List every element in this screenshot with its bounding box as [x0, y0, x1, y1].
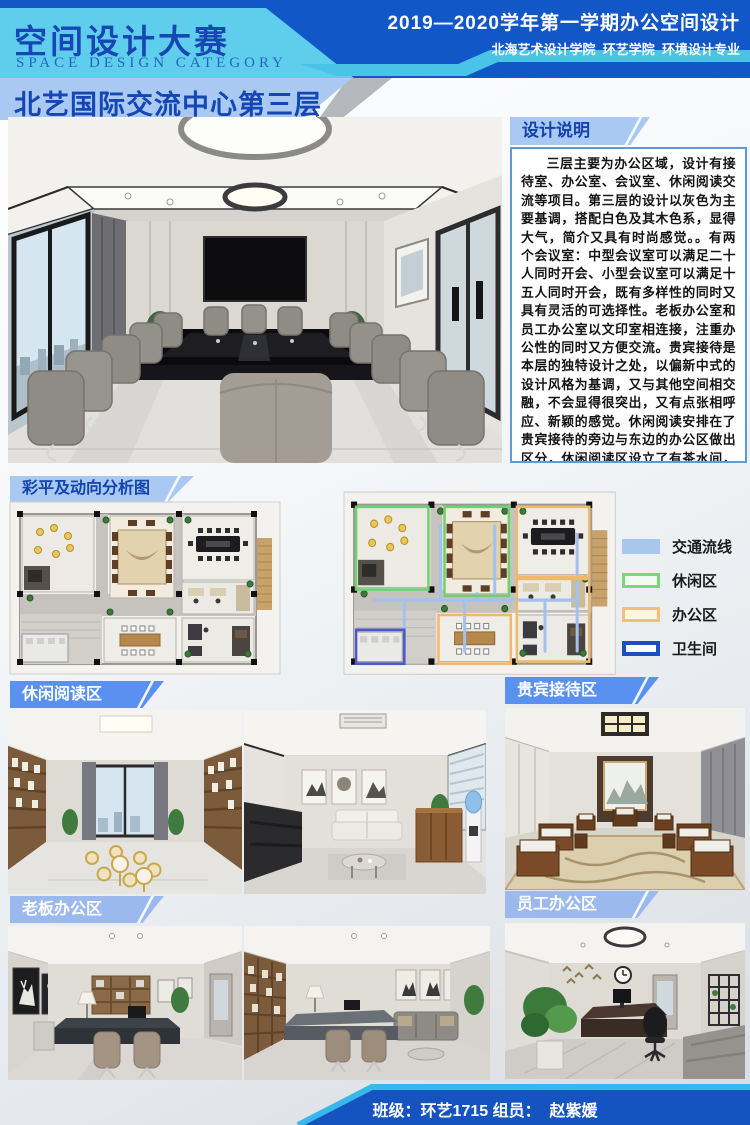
- wall-art: [302, 770, 386, 804]
- legend-swatch-office: [622, 607, 660, 622]
- term-line: 2019—2020学年第一学期办公空间设计: [387, 8, 740, 35]
- plant: [464, 985, 484, 1015]
- left-wall: [505, 738, 549, 838]
- photo-staff-office: [505, 923, 745, 1079]
- legend-label: 休闲区: [672, 570, 717, 591]
- ceiling-light-large: [181, 117, 329, 157]
- coffee-table: [408, 1048, 444, 1060]
- ceiling-light: [605, 928, 645, 946]
- monitor: [613, 989, 631, 1003]
- legend-swatch-traffic: [622, 539, 660, 554]
- sofa: [394, 1012, 458, 1040]
- department-line: 北海艺术设计学院 环艺学院 环境设计专业: [492, 39, 740, 58]
- footer-credit: 班级：环艺1715 组员： 赵紫媛: [290, 1097, 680, 1121]
- page-subtitle: SPACE DESIGN CATEGORY: [16, 55, 287, 72]
- floor-plan-analysis: [344, 492, 615, 674]
- photo-vip-reception: [505, 708, 745, 890]
- section-tag-leisure-reading: 休闲阅读区: [10, 681, 164, 708]
- legend-item-bathroom: 卫生间: [622, 638, 748, 659]
- design-notes-body: 三层主要为办公区域，设计有接待室、办公室、会议室、休闲阅读交流等项目。第三层的设…: [521, 155, 736, 463]
- cabinet: [416, 808, 462, 862]
- section-tag-staff-office: 员工办公区: [505, 891, 659, 918]
- floor-banner-main: 北艺国际交流中心: [14, 90, 238, 120]
- ac-vent: [340, 714, 386, 728]
- section-tag-boss-office: 老板办公区: [10, 896, 164, 923]
- white-sofa: [332, 810, 402, 840]
- plant: [171, 987, 189, 1013]
- legend-item-leisure: 休闲区: [622, 570, 748, 591]
- photo-reading-room: [8, 710, 242, 894]
- light-panel: [100, 716, 152, 732]
- legend-swatch-leisure: [622, 573, 660, 588]
- legend-label: 卫生间: [672, 638, 717, 659]
- foreground-chair: [220, 373, 332, 463]
- tv-screen: [204, 237, 306, 301]
- legend-item-traffic: 交通流线: [622, 536, 748, 557]
- legend-item-office: 办公区: [622, 604, 748, 625]
- design-notes-tag: 设计说明: [510, 117, 650, 145]
- legend-label: 办公区: [672, 604, 717, 625]
- floor-plans: [8, 490, 628, 680]
- photo-lounge: [244, 710, 486, 894]
- photo-boss-office-1: [8, 926, 242, 1080]
- photo-conference-room: [8, 117, 502, 463]
- water-dispenser: [466, 791, 482, 862]
- legend-label: 交通流线: [672, 536, 732, 557]
- design-notes-box: 三层主要为办公区域，设计有接待室、办公室、会议室、休闲阅读交流等项目。第三层的设…: [510, 147, 747, 463]
- plan-legend: 交通流线 休闲区 办公区 卫生间: [622, 536, 748, 672]
- curtain: [82, 762, 96, 840]
- ceiling-light-round: [225, 185, 285, 209]
- ceiling-lamp: [601, 712, 649, 736]
- photo-boss-office-2: [244, 926, 490, 1080]
- section-tag-vip-reception: 贵宾接待区: [505, 677, 659, 704]
- plant: [62, 809, 78, 835]
- floor-plan-color: [10, 502, 280, 674]
- legend-swatch-bathroom: [622, 641, 660, 656]
- poster: 空间设计大赛 SPACE DESIGN CATEGORY 2019—2020学年…: [0, 0, 750, 1125]
